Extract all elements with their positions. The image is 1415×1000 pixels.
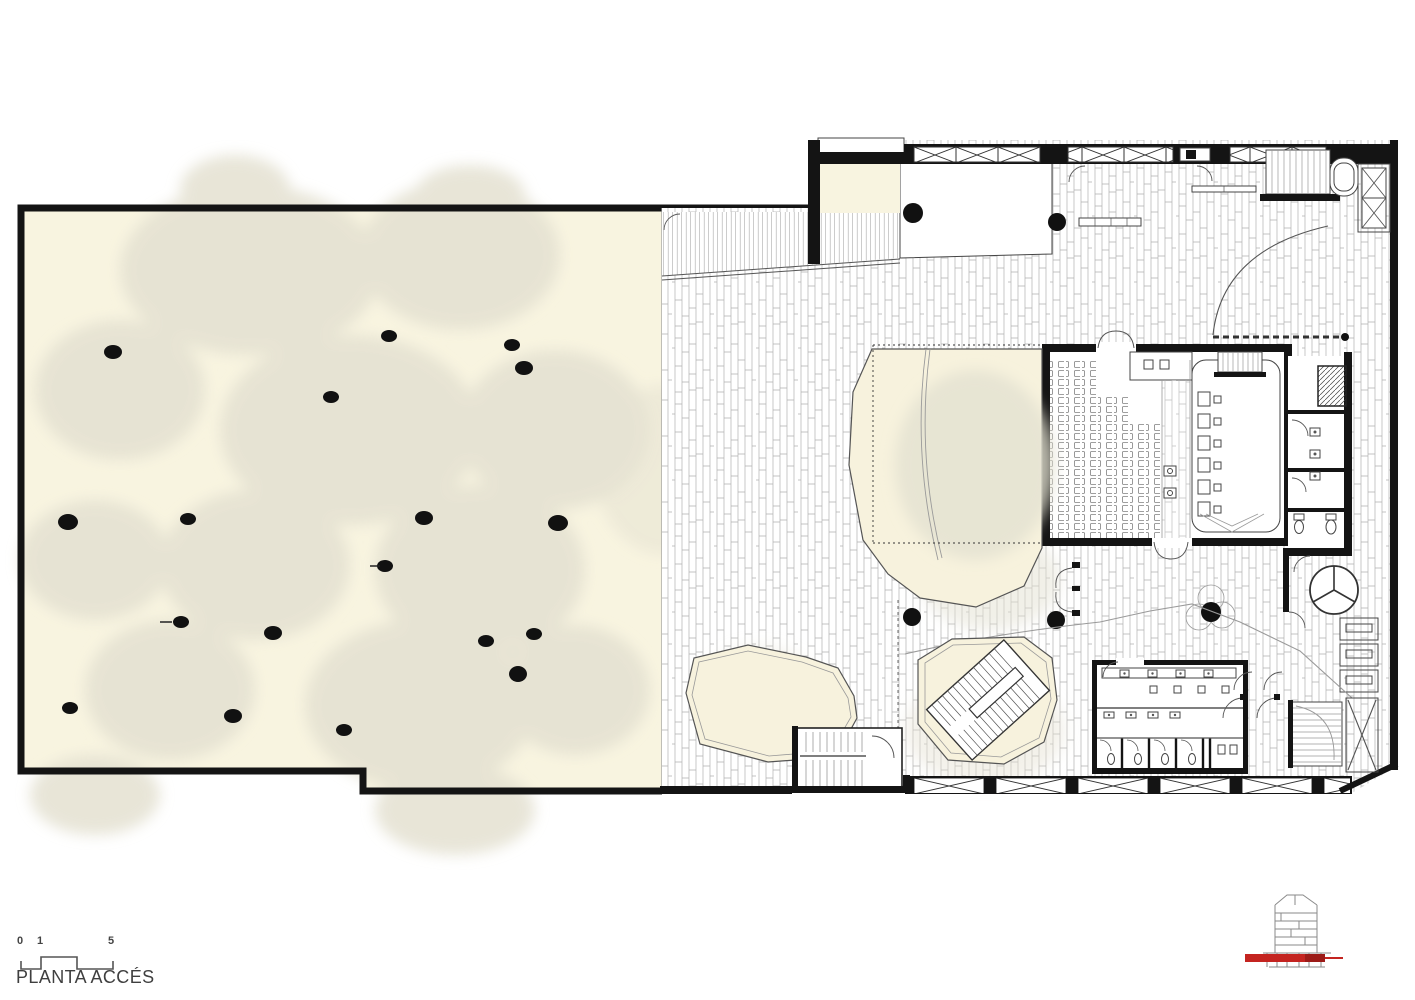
scale-tick-1: 1 [37,935,43,947]
auditorium [1042,331,1292,559]
scale-tick-5: 5 [108,935,114,947]
revolving-door [1310,566,1358,614]
floor-plan-page: 0 1 5 PLANTA ACCÉS [0,0,1415,1000]
plan-title: PLANTA ACCÉS [16,967,155,988]
bottom-left-stair [792,726,903,793]
scale-tick-0: 0 [17,935,23,947]
stair-pod [918,637,1057,764]
floor-plan-canvas [0,0,1415,1000]
section-level-indicator-icon [1245,895,1343,967]
building [660,138,1398,794]
entry-hall [900,157,1066,258]
